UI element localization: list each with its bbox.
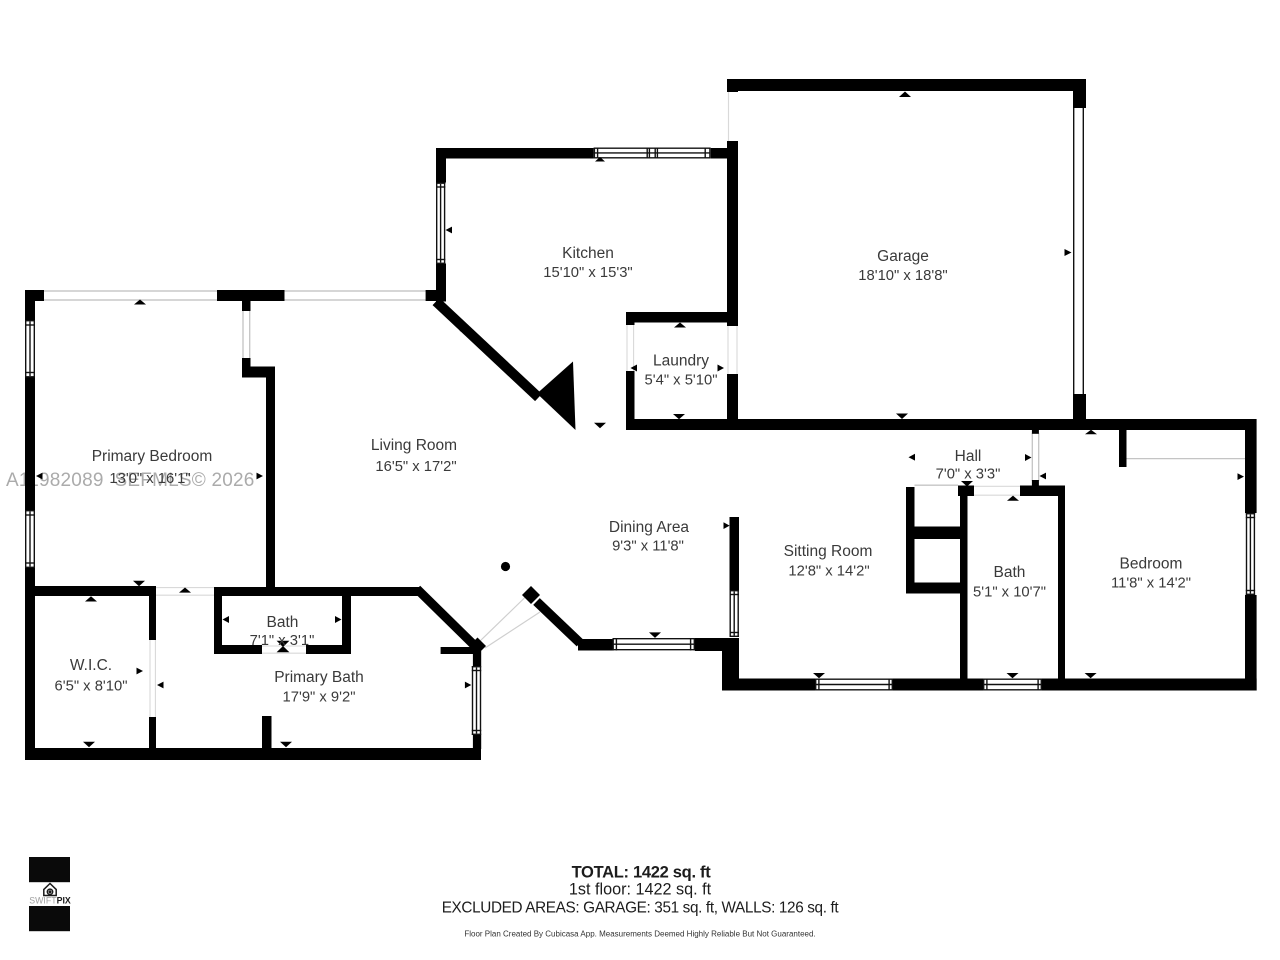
svg-text:12'8" x 14'2": 12'8" x 14'2" [788,564,869,580]
svg-text:5'1" x 10'7": 5'1" x 10'7" [973,585,1046,601]
svg-text:6'5" x 8'10": 6'5" x 8'10" [55,679,128,695]
svg-text:Primary Bath: Primary Bath [274,669,364,686]
svg-text:16'5" x 17'2": 16'5" x 17'2" [375,459,456,475]
svg-text:7'1" x 3'1": 7'1" x 3'1" [250,633,315,649]
svg-text:Sitting Room: Sitting Room [784,543,873,560]
svg-text:18'10" x 18'8": 18'10" x 18'8" [858,268,947,284]
svg-text:Kitchen: Kitchen [562,245,614,262]
svg-text:1st floor: 1422 sq. ft: 1st floor: 1422 sq. ft [569,881,712,899]
svg-text:Bath: Bath [267,614,299,631]
svg-text:EXCLUDED AREAS: GARAGE: 351 sq: EXCLUDED AREAS: GARAGE: 351 sq. ft, WALL… [442,900,840,917]
svg-text:Laundry: Laundry [653,353,709,370]
svg-text:Dining Area: Dining Area [609,519,690,536]
svg-text:Floor Plan Created By Cubicasa: Floor Plan Created By Cubicasa App. Meas… [464,930,815,939]
svg-text:15'10" x 15'3": 15'10" x 15'3" [543,265,632,281]
svg-text:W.I.C.: W.I.C. [70,657,112,674]
svg-text:Living Room: Living Room [371,437,457,454]
svg-text:Bath: Bath [994,564,1026,581]
svg-text:Hall: Hall [955,448,982,465]
svg-text:11'8" x 14'2": 11'8" x 14'2" [1111,576,1191,592]
svg-text:TOTAL: 1422 sq. ft: TOTAL: 1422 sq. ft [572,864,712,882]
svg-text:Primary Bedroom: Primary Bedroom [92,448,213,465]
svg-text:13'0" x 16'1": 13'0" x 16'1" [109,471,190,487]
svg-text:5'4" x 5'10": 5'4" x 5'10" [645,373,718,389]
svg-text:17'9" x 9'2": 17'9" x 9'2" [283,690,356,706]
svg-text:9'3" x 11'8": 9'3" x 11'8" [612,539,684,555]
svg-text:SWIFTPIX: SWIFTPIX [29,896,71,906]
svg-text:7'0" x 3'3": 7'0" x 3'3" [936,467,1001,483]
svg-text:Bedroom: Bedroom [1120,556,1183,573]
svg-text:Garage: Garage [877,248,929,265]
